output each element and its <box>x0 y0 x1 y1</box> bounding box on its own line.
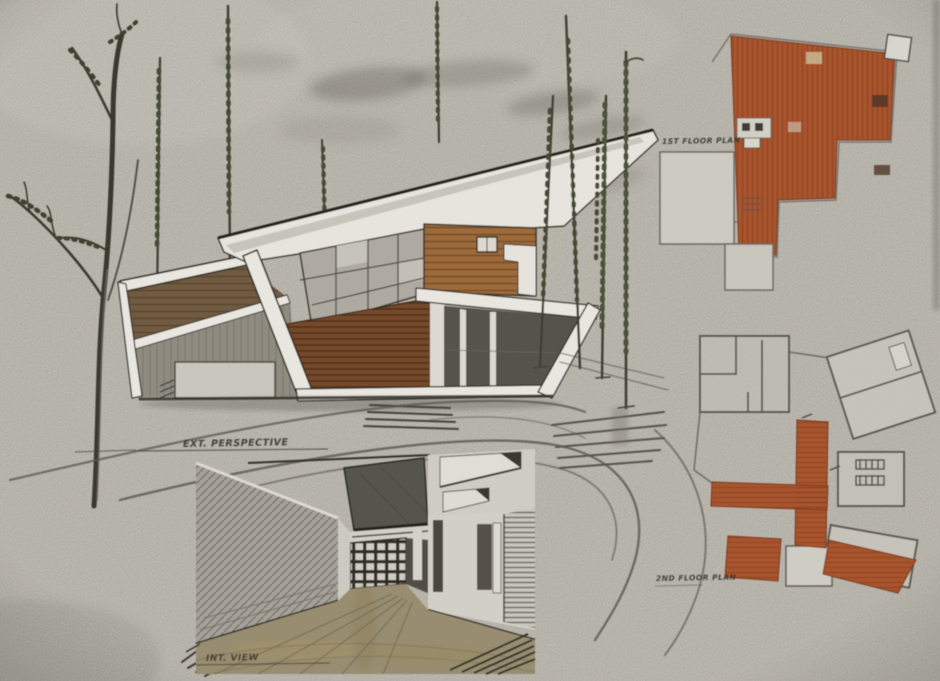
photo-artifacts <box>0 0 940 681</box>
photographed-sketch-sheet: EXT. PERSPECTIVE <box>0 0 940 681</box>
vignette-overlay <box>0 0 940 681</box>
architectural-sketch-canvas: EXT. PERSPECTIVE <box>0 0 940 681</box>
